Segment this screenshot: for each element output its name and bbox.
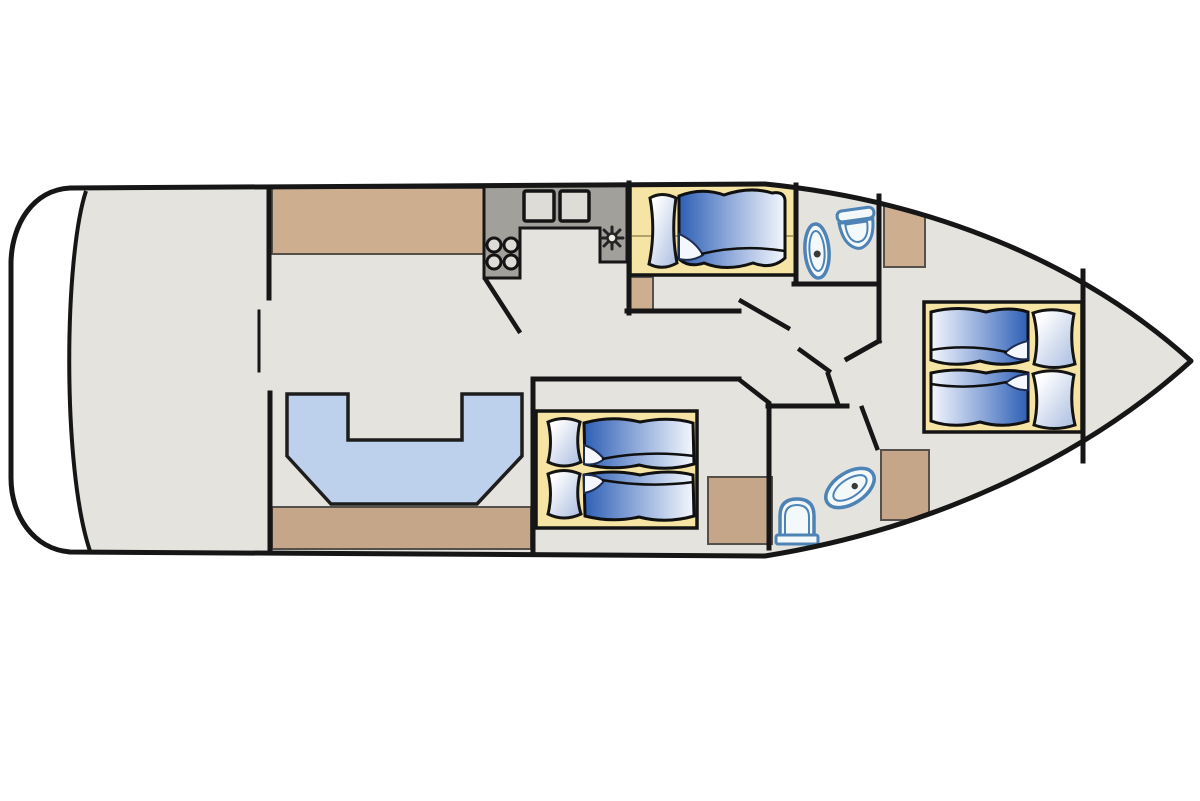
guest-bed-step	[630, 277, 653, 311]
wardrobe-mid-cabin	[708, 477, 772, 544]
guest-cabin	[630, 183, 796, 275]
bow-cabin	[924, 302, 1082, 432]
aft-cabinet-strip	[272, 507, 531, 549]
mid-cabin	[536, 411, 697, 528]
toilet-icon	[776, 499, 818, 544]
bow-bed1-pillow	[1033, 310, 1075, 368]
boat-floor-plan	[0, 0, 1200, 801]
mid-bed1-pillow	[548, 419, 581, 467]
guest-bed-pillow	[649, 195, 677, 268]
salon-sideboard	[272, 188, 484, 254]
counter-hatch-right	[560, 191, 589, 221]
galley-sink-icon	[601, 227, 623, 249]
mid-bed2-pillow	[548, 471, 581, 519]
bow-bed2-pillow	[1033, 371, 1075, 429]
counter-hatch-left	[524, 191, 554, 221]
bathroom-cabinet	[881, 450, 929, 520]
floor-plan-canvas	[0, 0, 1200, 801]
